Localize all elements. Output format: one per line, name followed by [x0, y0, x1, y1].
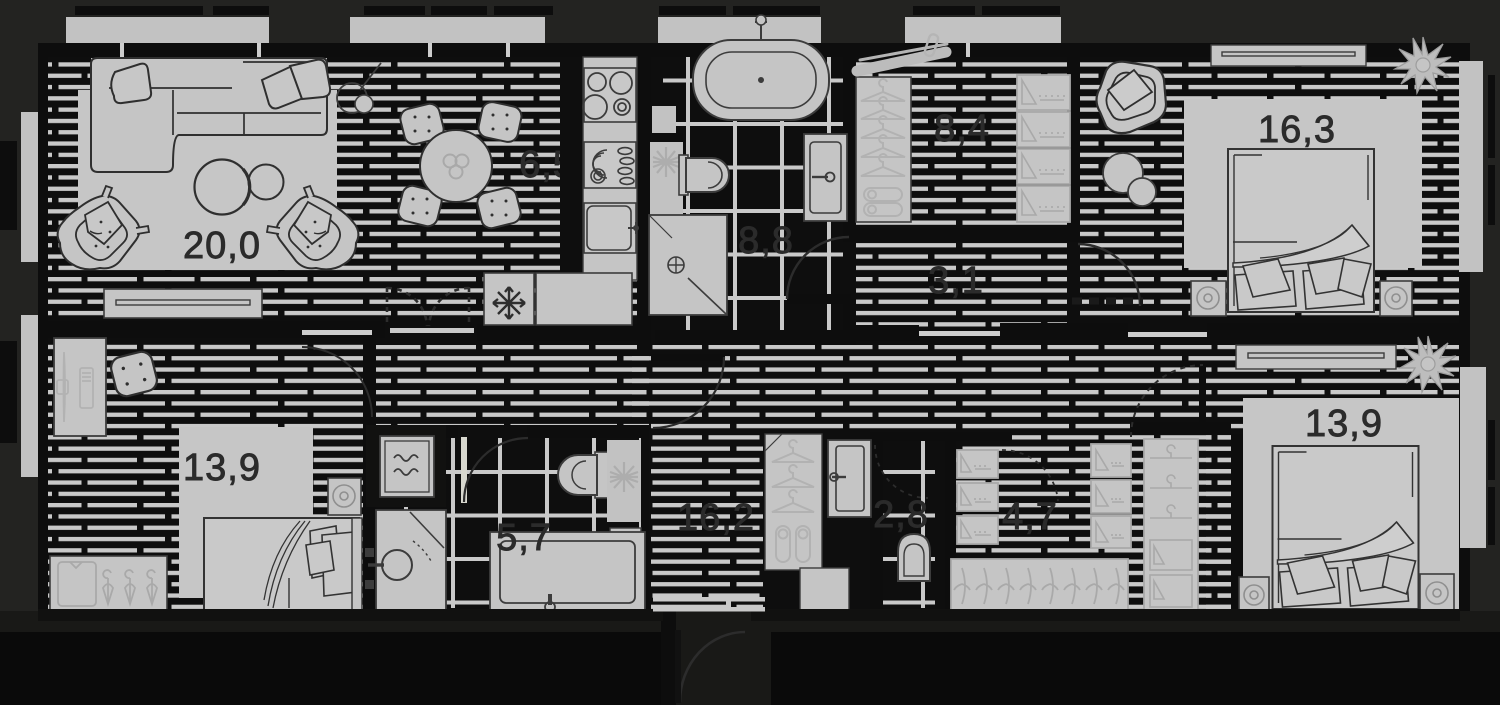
- svg-text:16,2: 16,2: [677, 497, 755, 539]
- svg-text:4,7: 4,7: [1002, 496, 1058, 538]
- svg-text:5,7: 5,7: [496, 517, 552, 559]
- svg-text:13,9: 13,9: [1305, 403, 1383, 445]
- svg-text:8,8: 8,8: [738, 220, 794, 262]
- svg-text:13,9: 13,9: [183, 447, 261, 489]
- svg-text:20,0: 20,0: [183, 225, 261, 267]
- svg-text:8,4: 8,4: [934, 108, 990, 150]
- svg-text:3,1: 3,1: [928, 260, 984, 302]
- svg-text:16,3: 16,3: [1258, 109, 1336, 151]
- svg-text:2,8: 2,8: [873, 494, 929, 536]
